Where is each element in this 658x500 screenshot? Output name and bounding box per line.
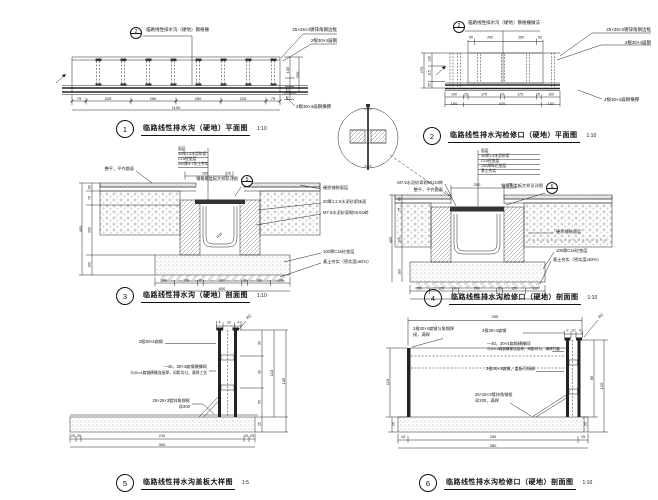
annotation: 2根30×4扁钢与角钢焊 [413, 327, 454, 331]
detail-title: 临路线性排水沟（硬地）平面图 [141, 123, 250, 136]
detail-1-title: 1 临路线性排水沟（硬地）平面图 1:10 [116, 120, 267, 138]
annotation: —40，30×4扁钢横撑网 [164, 365, 207, 369]
annotation: 4根30×4扁钢横撑 [604, 98, 639, 103]
dim-label: 25 [428, 83, 432, 87]
annotation: 25×25×3镀锌角钢边框 [606, 28, 651, 33]
dim-label: 30 [198, 279, 202, 283]
dim-label: 1100 [172, 106, 181, 110]
dim-label: 135 [282, 378, 286, 385]
detail-title: 临路线性排水沟（硬地）剖面图 [141, 290, 250, 303]
detail-4-title: 4 临路线性排水沟检修口（硬地）剖面图 1:10 [424, 289, 597, 307]
dim-label: 25 [464, 93, 468, 97]
dim-label: 225 [240, 97, 247, 101]
dim-label: 25 [392, 422, 396, 426]
dim-label: 75 [271, 97, 275, 101]
dim-label: 270 [420, 67, 424, 74]
detail-number-circle: 2 [423, 127, 441, 145]
dim-label: 20 [227, 321, 231, 325]
dim-label: 120 [600, 383, 604, 390]
dim-label: 115 [428, 70, 432, 76]
dim-label: 75 [88, 196, 92, 200]
dim-label: 100 [398, 269, 402, 275]
dim-label: 30 [258, 370, 262, 374]
annotation: 硬质铺装面层 [556, 230, 581, 234]
dim-label: 75 [77, 97, 81, 101]
dim-label: 120 [256, 279, 262, 283]
annotation: 2根30×4扁钢，盖板可拆卸 [486, 367, 535, 371]
dim-label: 455 [79, 226, 83, 233]
dim-label: R30 [216, 232, 223, 239]
dim-label: 30 [243, 279, 247, 283]
annotation: 100厚C15砼垫层 [323, 250, 354, 254]
detail-scale: 1:10 [583, 480, 593, 486]
dim-label: 250 [195, 97, 202, 101]
detail-ref-bubble: 2 [453, 21, 465, 33]
dim-label: 250 [474, 183, 481, 187]
dim-label: 200 [398, 237, 402, 243]
detail-2-title: 2 临路线性排水沟检修口（硬地）平面图 1:10 [423, 127, 596, 145]
detail-title: 临路线性排水沟盖板大样图 [141, 477, 235, 490]
annotation: 整平，平齐路面 [414, 188, 443, 192]
detail-scale: 1:10 [587, 133, 597, 139]
detail-number-circle: 5 [116, 474, 134, 492]
detail-title: 临路线性排水沟检修口（硬地）剖面图 [449, 292, 581, 305]
drawing-sheet: 临路线性排水沟（硬地）钢格栅225×25×3镀锌角钢边框2根30×4扁钢1052… [0, 0, 658, 500]
dim-label: 50 [258, 400, 262, 404]
detail-5-title: 5 临路线性排水沟盖板大样图 1:5 [116, 474, 249, 492]
detail-title: 临路线性排水沟检修口（硬地）剖面图 [444, 477, 576, 490]
dim-label: 200 [219, 279, 225, 283]
bubble-number: 6 [551, 184, 554, 189]
dim-label: 15 [581, 436, 585, 440]
dim-label: 100 [161, 279, 167, 283]
labels-layer: 临路线性排水沟（硬地）钢格栅225×25×3镀锌角钢边框2根30×4扁钢1052… [0, 0, 658, 500]
dim-label: 4 [238, 321, 240, 325]
detail-3-title: 3 临路线性排水沟（硬地）剖面图 1:10 [116, 287, 267, 305]
annotation: 100厚C15砼垫层 [556, 249, 587, 253]
annotation: 整平，平齐路面 [105, 167, 134, 171]
dim-label: 255 [492, 315, 499, 319]
annotation: 硬质铺装面层 [323, 186, 348, 190]
dim-label: 100 [88, 262, 92, 268]
detail-6-title: 6 临路线性排水沟检修口（硬地）剖面图 1:10 [419, 474, 592, 492]
annotation: —40，30×4扁钢横撑网 [487, 342, 530, 346]
dim-label: 50 [469, 36, 473, 40]
detail-number-circle: 1 [116, 120, 134, 138]
annotation: 2根30×4扁钢 [139, 340, 163, 344]
dim-label: 250 [150, 97, 157, 101]
dim-label: 75 [286, 96, 290, 100]
callout-text: 钢格栅盖板大样见详图 [196, 177, 238, 181]
dim-label: 80 [398, 197, 402, 201]
detail-number-circle: 6 [419, 474, 437, 492]
detail-number-circle: 4 [424, 289, 442, 307]
dim-label: 210 [159, 435, 165, 439]
annotation: 2根30×4扁钢 [625, 41, 651, 46]
dim-label: 110 [270, 370, 274, 376]
dim-label: 130 [428, 56, 432, 62]
dim-label: 4 [579, 329, 581, 333]
dim-label: 225 [105, 97, 112, 101]
annotation: M7.5水泥砂浆砌MU10砖 [397, 181, 443, 185]
dim-label: 100 [277, 279, 283, 283]
annotation: 素土夯实 [481, 170, 496, 174]
dim-label: 20 [244, 435, 248, 439]
dim-label: 25 [71, 435, 75, 439]
dim-label: 300 [159, 443, 166, 447]
dim-label: 250 [490, 436, 496, 440]
annotation: @200，满焊 [475, 399, 499, 403]
dim-label: 85 [590, 376, 594, 380]
annotation: 20厚1:2.5水泥砂浆抹面 [323, 200, 366, 204]
annotation: 2根30×4扁钢 [311, 39, 337, 44]
annotation: 2根30×4扁钢 [482, 329, 506, 333]
dim-label: 75 [398, 208, 402, 212]
annotation: 临路线性排水沟（硬地）钢格栅做法 [468, 21, 540, 26]
dim-label: 175 [481, 93, 487, 97]
dim-label: 100 [451, 93, 457, 97]
detail-scale: 1:10 [257, 293, 267, 299]
annotation: 4根30×4扁钢横撑 [296, 105, 331, 110]
detail-ref-bubble: 2 [130, 27, 142, 39]
dim-label: 25 [536, 93, 540, 97]
dim-label: 455 [389, 237, 393, 244]
annotation: 25×25×3镀锌角钢框 [475, 393, 512, 397]
dim-label: 80 [88, 185, 92, 189]
annotation: 临路线性排水沟（硬地）钢格栅 [146, 28, 209, 33]
bubble-number: 5 [246, 177, 249, 182]
dim-label: 100 [548, 93, 554, 97]
annotation: 25×25×3镀锌角钢边框 [292, 28, 337, 33]
dim-label: 25 [258, 422, 262, 426]
dim-label: 200 [88, 227, 92, 233]
dim-label: 50 [538, 36, 542, 40]
detail-title: 临路线性排水沟检修口（硬地）平面图 [448, 130, 580, 143]
annotation: 25×25×3镀锌角钢框 [153, 399, 190, 403]
dim-label: 25 [286, 88, 290, 92]
dim-label: 120 [183, 279, 189, 283]
annotation: M7.5水泥砂浆砌MU10砖 [323, 211, 369, 215]
annotation: 接，满焊 [413, 333, 430, 337]
dim-label: 110 [386, 379, 390, 385]
detail-ref-bubble: 6 [546, 182, 558, 194]
dim-label: 175 [517, 93, 523, 97]
dim-label: R2 [598, 313, 604, 319]
dim-label: R2 [246, 314, 252, 320]
dim-label: 2 [567, 329, 569, 333]
dim-label: 100 [548, 102, 555, 106]
dim-label: 30 [258, 341, 262, 345]
dim-label: 25 [250, 435, 254, 439]
annotation: 与30×4扁钢横撑连接焊，间距均匀，满焊打磨 [487, 348, 560, 352]
dim-label: 250 [487, 36, 493, 40]
callout-text: 钢格栅盖板大样见详图 [501, 184, 543, 188]
bubble-number: 2 [135, 29, 138, 34]
dim-label: 420 [499, 102, 506, 106]
annotation: 素土夯实（密实度≥92%） [323, 260, 371, 264]
dim-label: 280 [490, 444, 497, 448]
detail-scale: 1:5 [242, 480, 249, 486]
dim-label: 100 [451, 102, 458, 106]
dim-label: 25 [584, 422, 588, 426]
dim-label: 100 [416, 287, 422, 291]
dim-label: 105 [286, 67, 290, 74]
detail-scale: 1:10 [588, 295, 598, 301]
detail-number-circle: 3 [116, 287, 134, 305]
dim-label: 20 [77, 435, 81, 439]
annotation: 素土夯实（密实度≥92%） [553, 258, 601, 262]
detail-ref-bubble: 5 [241, 175, 253, 187]
dim-label: 4 [219, 321, 221, 325]
dim-label: 20 [572, 329, 576, 333]
annotation: 与30×4扁钢横撑连接焊，间距均匀，满焊工艺 [130, 372, 207, 376]
dim-label: 15 [401, 436, 405, 440]
dim-label: 250 [518, 36, 524, 40]
annotation: @200 [179, 405, 190, 409]
dim-label: 20 [500, 93, 504, 97]
annotation: 300厚3:7灰土夯实 [178, 163, 209, 167]
dim-label: 250 [296, 72, 300, 79]
bubble-number: 2 [458, 23, 461, 28]
detail-scale: 1:10 [257, 126, 267, 132]
